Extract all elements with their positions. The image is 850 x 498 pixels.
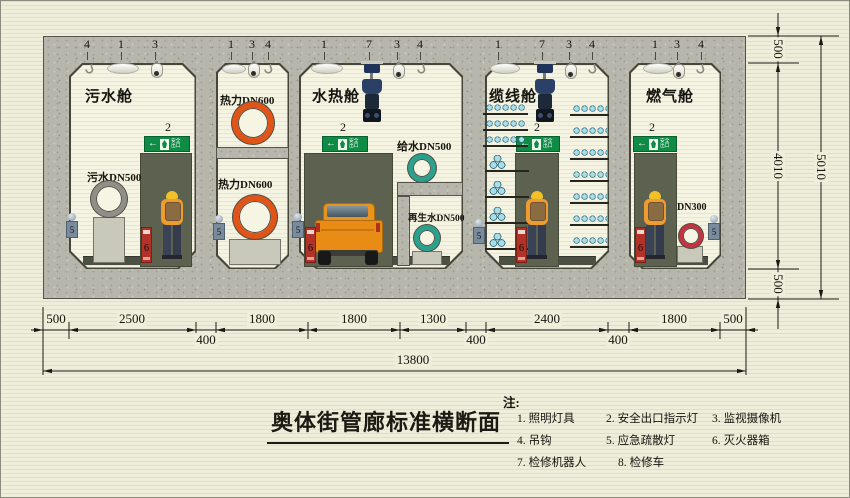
legend-num: 6.: [712, 435, 721, 447]
dimension-label: 1800: [247, 312, 277, 326]
legend-label: 灭火器箱: [724, 435, 770, 447]
tunnel-cross-section-drawing: 4 1 3 1 3 4 1 7 3 4 1 7 3 4 1 3 4 污水舱 水热…: [0, 0, 850, 498]
dimension-label: 400: [194, 333, 218, 347]
dimension-label: 2400: [532, 312, 562, 326]
legend-num: 4.: [517, 435, 526, 447]
legend-label: 安全出口指示灯: [618, 413, 699, 425]
dimension-label: 500: [44, 312, 68, 326]
legend-item: 1.照明灯具: [517, 410, 575, 426]
legend-num: 8.: [618, 457, 627, 469]
vertical-dimension-label: 500: [771, 272, 785, 296]
total-width-label: 13800: [395, 353, 432, 367]
legend-num: 3.: [712, 413, 721, 425]
dimension-label: 400: [464, 333, 488, 347]
legend-label: 吊钩: [529, 435, 552, 447]
notes-heading: 注:: [503, 392, 520, 411]
legend-num: 1.: [517, 413, 526, 425]
vertical-dimension-label: 4010: [771, 151, 785, 181]
legend-item: 8.检修车: [618, 454, 664, 470]
legend-item: 3.监视摄像机: [712, 410, 781, 426]
dimension-label: 1800: [659, 312, 689, 326]
legend-item: 6.灭火器箱: [712, 432, 770, 448]
legend-item: 7.检修机器人: [517, 454, 586, 470]
legend-num: 5.: [606, 435, 615, 447]
legend-num: 2.: [606, 413, 615, 425]
legend-item: 2.安全出口指示灯: [606, 410, 698, 426]
legend-label: 检修机器人: [529, 457, 587, 469]
legend-label: 监视摄像机: [724, 413, 782, 425]
dimension-label: 1300: [418, 312, 448, 326]
dimension-label: 400: [606, 333, 630, 347]
dimension-label: 1800: [339, 312, 369, 326]
legend-label: 检修车: [630, 457, 665, 469]
dimension-label: 2500: [117, 312, 147, 326]
legend-item: 5.应急疏散灯: [606, 432, 675, 448]
total-height-label: 5010: [814, 152, 828, 182]
legend-num: 7.: [517, 457, 526, 469]
dimension-label: 500: [721, 312, 745, 326]
legend-label: 应急疏散灯: [618, 435, 676, 447]
vertical-dimension-label: 500: [771, 37, 785, 61]
drawing-title: 奥体街管廊标准横断面: [267, 405, 509, 444]
legend-item: 4.吊钩: [517, 432, 552, 448]
legend-label: 照明灯具: [529, 413, 575, 425]
